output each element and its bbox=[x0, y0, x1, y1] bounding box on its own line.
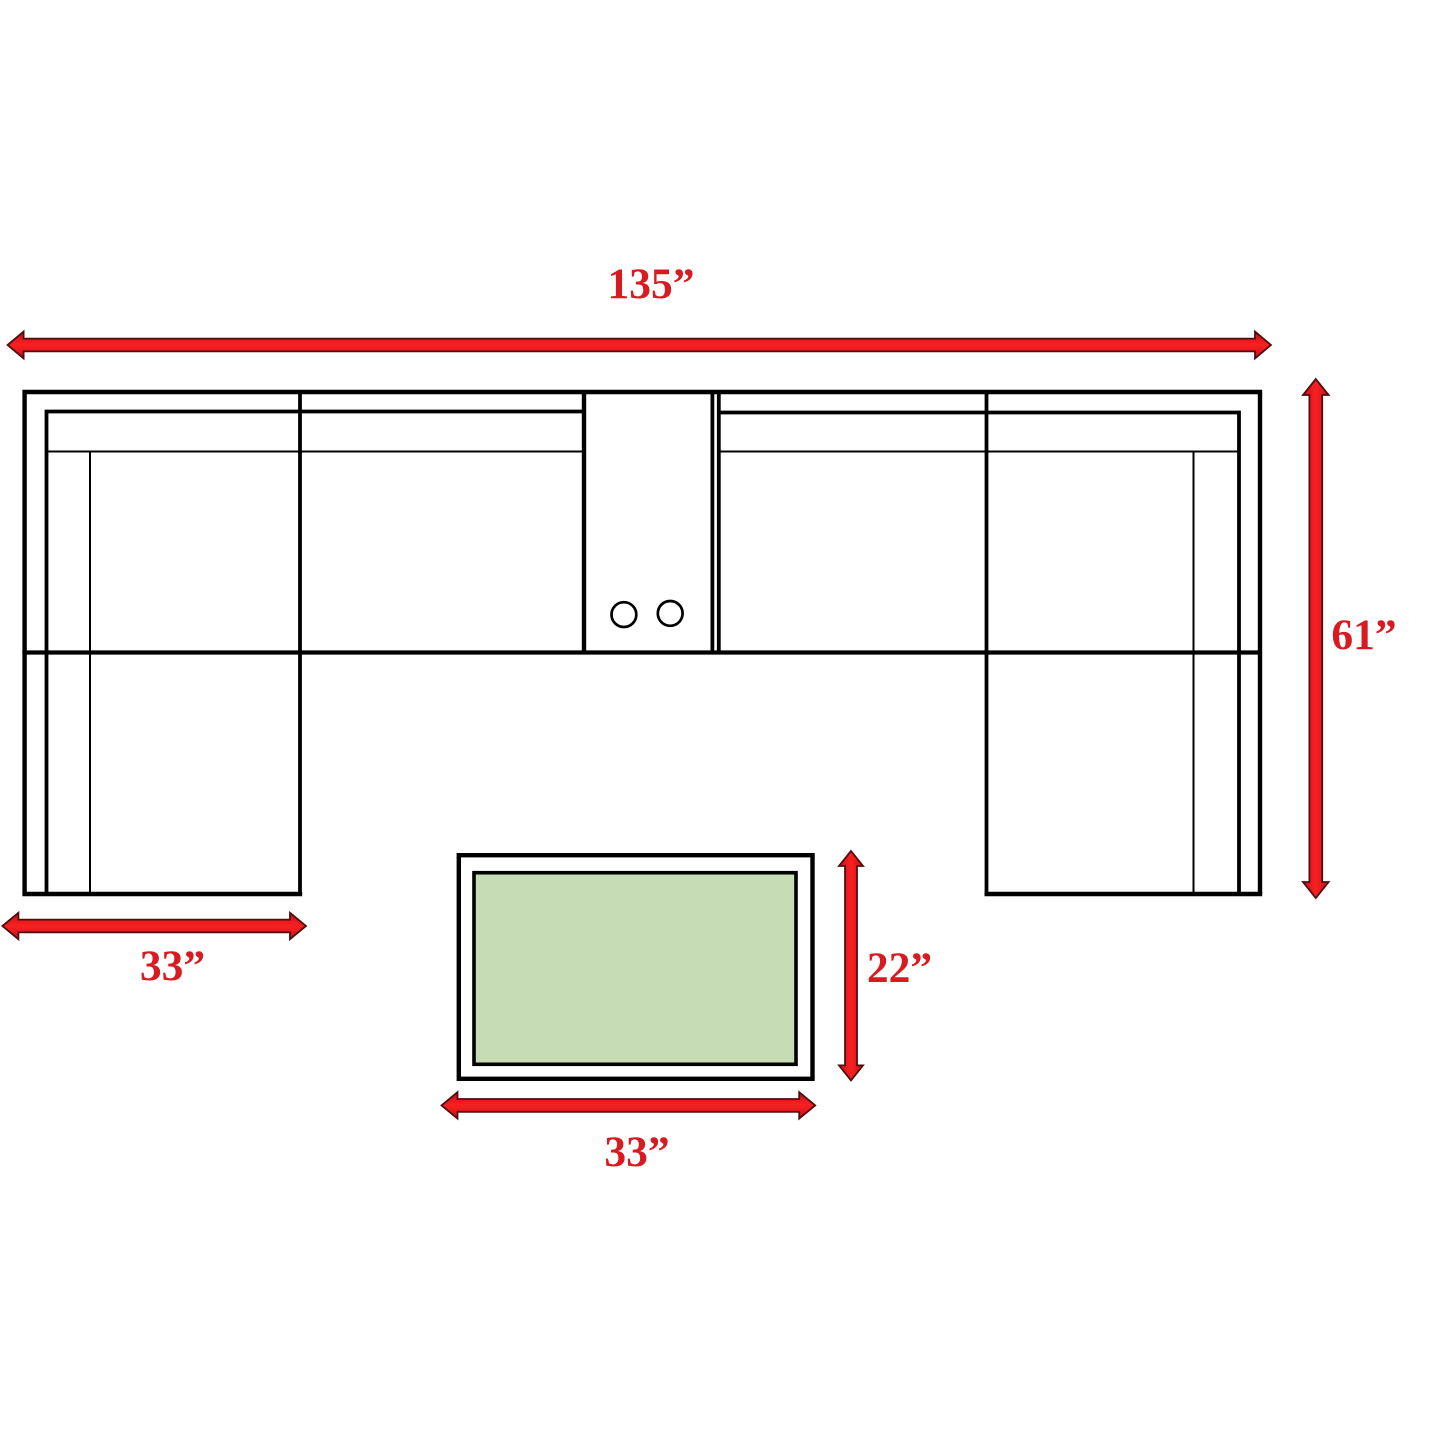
svg-text:61”: 61” bbox=[1331, 611, 1396, 659]
svg-text:22”: 22” bbox=[867, 944, 932, 992]
svg-text:135”: 135” bbox=[608, 260, 695, 308]
svg-text:33”: 33” bbox=[140, 942, 205, 990]
svg-text:33”: 33” bbox=[604, 1128, 669, 1176]
